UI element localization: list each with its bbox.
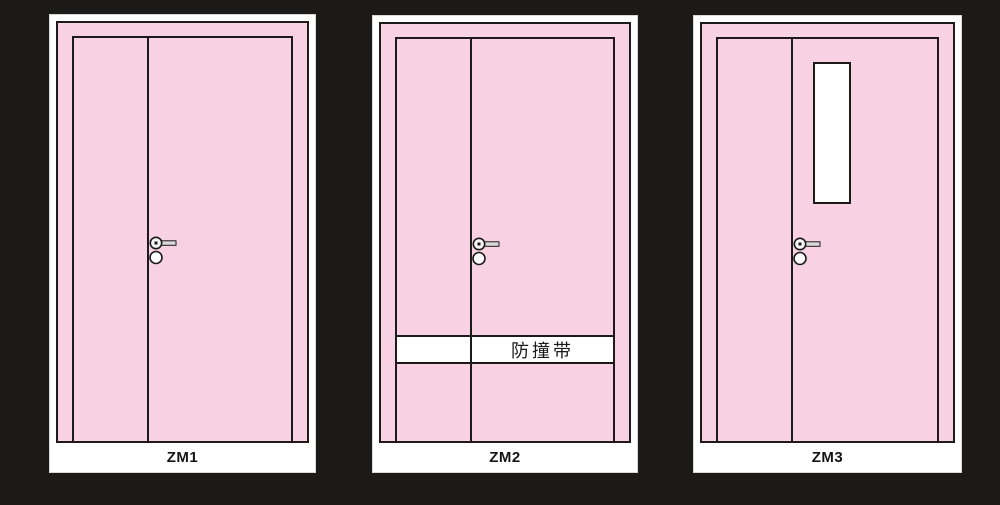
door-handle	[471, 237, 505, 267]
door-frame: 防撞带	[379, 22, 631, 443]
lever-handle-icon	[794, 238, 820, 249]
door-handle	[148, 236, 182, 266]
anti-collision-strip: 防撞带	[397, 335, 613, 364]
anti-collision-strip-label: 防撞带	[472, 337, 613, 362]
door-label: ZM2	[373, 443, 637, 472]
vision-panel-window	[813, 62, 851, 204]
door-drawing-zm1: ZM1	[49, 14, 316, 473]
door-label: ZM1	[50, 443, 315, 472]
door-drawing-zm2: 防撞带 ZM2	[372, 15, 638, 473]
door-frame	[56, 21, 309, 443]
lock-cylinder-icon	[473, 253, 485, 265]
door-frame	[700, 22, 955, 443]
door-leaves	[72, 36, 293, 441]
door-leaves	[716, 37, 939, 441]
door-drawing-zm3: ZM3	[693, 15, 962, 473]
drawing-canvas: { "canvas": { "width": 1000, "height": 5…	[0, 0, 1000, 505]
lock-cylinder-icon	[794, 253, 806, 265]
lever-handle-icon	[150, 237, 176, 248]
door-leaves: 防撞带	[395, 37, 615, 441]
lever-handle-icon	[473, 238, 499, 249]
door-label: ZM3	[694, 443, 961, 472]
lock-cylinder-icon	[150, 252, 162, 264]
door-handle	[792, 237, 826, 267]
